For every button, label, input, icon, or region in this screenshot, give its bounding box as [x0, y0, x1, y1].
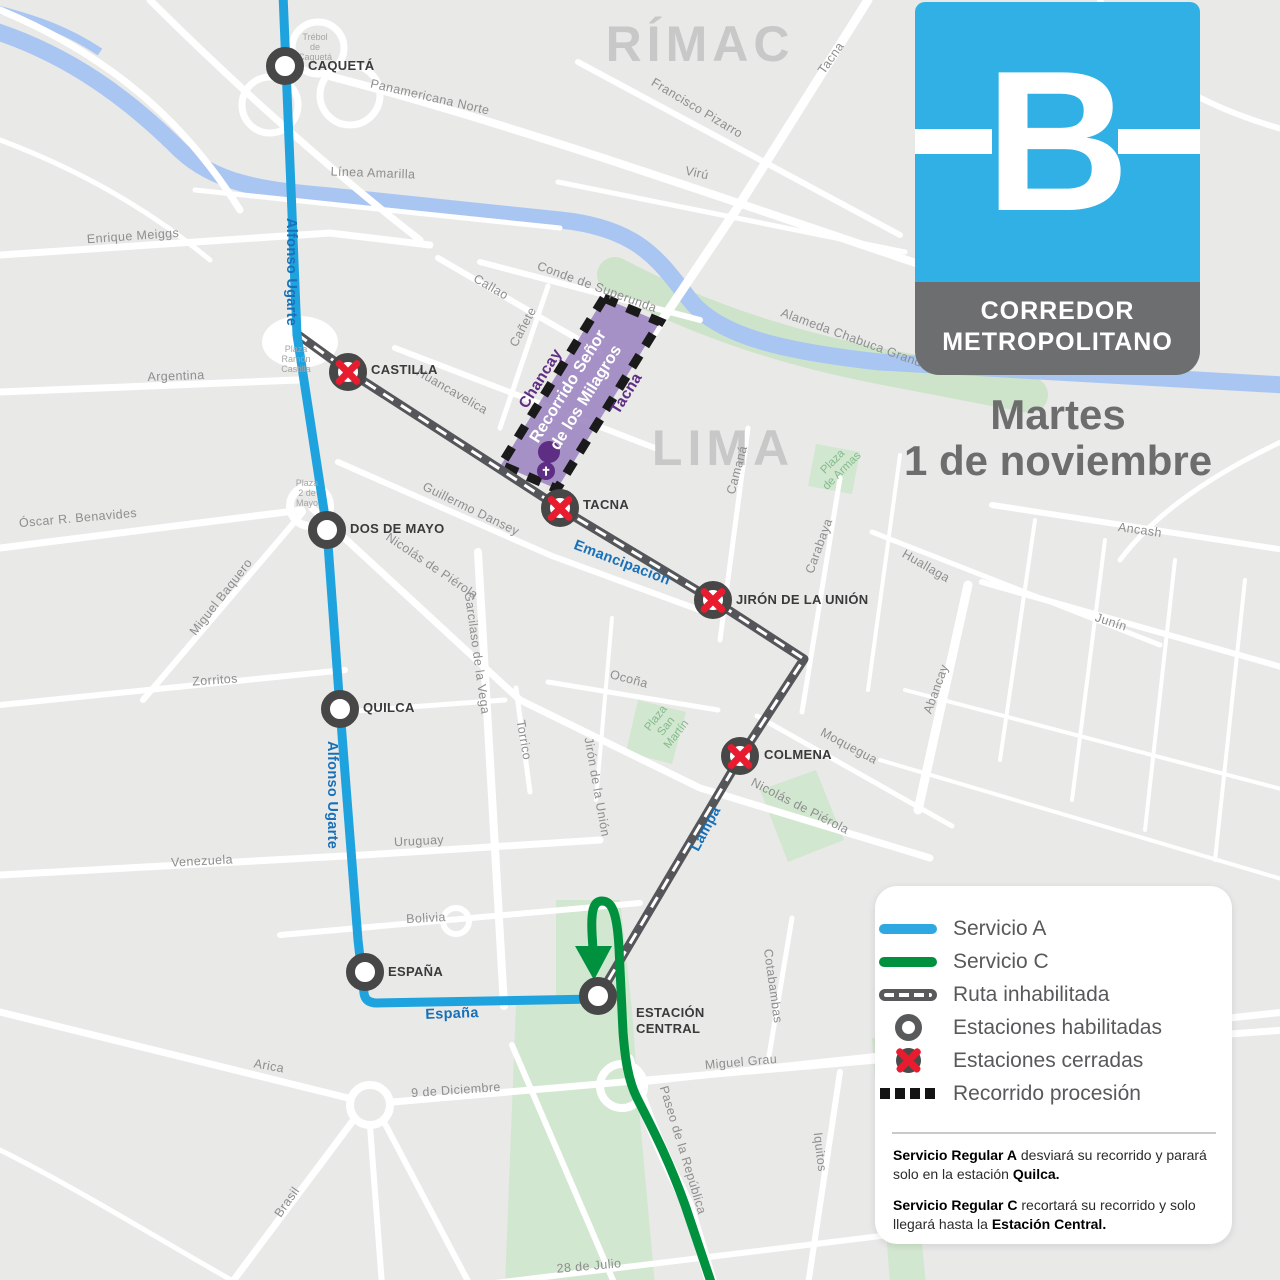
legend-item-label: Servicio A: [953, 917, 1046, 941]
closed-station-marker: [694, 581, 732, 619]
legend-item: Recorrido procesión: [875, 1077, 1232, 1110]
legend-item-label: Estaciones habilitadas: [953, 1016, 1162, 1040]
open-station-marker: [308, 511, 346, 549]
line-blue-icon: [875, 924, 941, 934]
svg-text:✝: ✝: [541, 465, 551, 479]
station-label: CAQUETÁ: [308, 58, 374, 74]
legend-item: Servicio C: [875, 945, 1232, 978]
divider: [892, 1132, 1216, 1134]
open-station-marker: [346, 953, 384, 991]
date-heading: Martes 1 de noviembre: [878, 392, 1238, 484]
metropolitano-logo-card: B CORREDOR METROPOLITANO: [915, 2, 1200, 375]
logo-title-box: CORREDOR METROPOLITANO: [915, 282, 1200, 375]
station-label: DOS DE MAYO: [350, 521, 445, 537]
legend-item: Estaciones habilitadas: [875, 1011, 1232, 1044]
procession-icon: [875, 1088, 941, 1099]
legend-item: Estaciones cerradas: [875, 1044, 1232, 1077]
line-disabled-icon: [875, 989, 941, 1001]
legend-item-label: Servicio C: [953, 950, 1049, 974]
station-label: QUILCA: [363, 700, 415, 716]
station-label: COLMENA: [764, 747, 832, 763]
logo-bar-left-icon: [915, 129, 992, 154]
legend-item-label: Estaciones cerradas: [953, 1049, 1143, 1073]
procession-zone: ✝: [501, 298, 660, 489]
service-note: Servicio Regular A desviará su recorrido…: [893, 1146, 1214, 1184]
legend-item-label: Recorrido procesión: [953, 1082, 1141, 1106]
logo-letter: B: [985, 12, 1129, 272]
closed-station-marker: [541, 489, 579, 527]
closed-station-marker: [721, 737, 759, 775]
service-note: Servicio Regular C recortará su recorrid…: [893, 1196, 1214, 1234]
station-label: ESTACIÓN CENTRAL: [636, 1005, 705, 1038]
station-label: TACNA: [583, 497, 629, 513]
date-line2: 1 de noviembre: [878, 438, 1238, 484]
service-notes: Servicio Regular A desviará su recorrido…: [875, 1146, 1232, 1234]
legend-item-label: Ruta inhabilitada: [953, 983, 1109, 1007]
station-label: CASTILLA: [371, 362, 438, 378]
legend-list: Servicio AServicio CRuta inhabilitadaEst…: [875, 912, 1232, 1110]
logo-bar-right-icon: [1118, 129, 1200, 154]
line-green-icon: [875, 957, 941, 967]
station-open-icon: [875, 1014, 941, 1041]
legend-item: Ruta inhabilitada: [875, 978, 1232, 1011]
closed-station-marker: [329, 353, 367, 391]
logo-title-line1: CORREDOR: [915, 296, 1200, 327]
station-closed-icon: [875, 1048, 941, 1073]
open-station-marker: [266, 47, 304, 85]
station-label: JIRÓN DE LA UNIÓN: [736, 592, 868, 608]
procession-point: [538, 441, 560, 463]
open-station-marker: [321, 690, 359, 728]
station-label: ESPAÑA: [388, 964, 443, 980]
date-line1: Martes: [878, 392, 1238, 438]
transit-map-infographic: ✝ RÍMACLIMATrébol de CaquetáPanamericana…: [0, 0, 1280, 1280]
legend-card: Servicio AServicio CRuta inhabilitadaEst…: [875, 886, 1232, 1244]
legend-item: Servicio A: [875, 912, 1232, 945]
logo-title-line2: METROPOLITANO: [915, 327, 1200, 358]
open-station-marker: [579, 977, 617, 1015]
logo-blue-tile: B: [915, 2, 1200, 282]
